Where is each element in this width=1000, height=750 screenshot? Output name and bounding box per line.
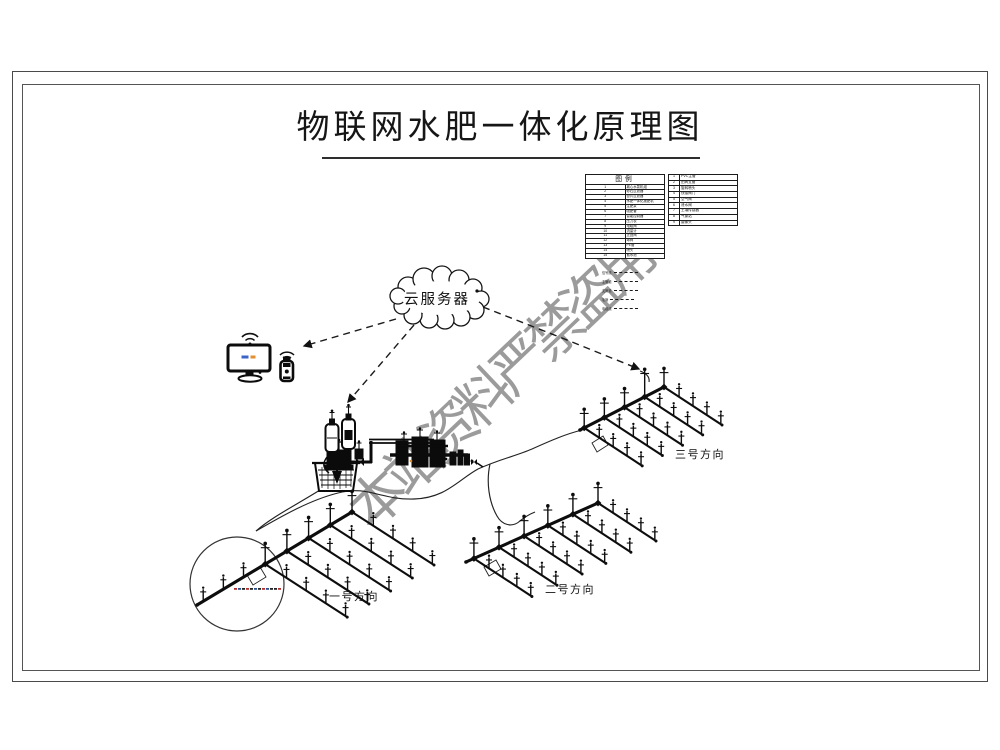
monitor-icon [228,334,270,382]
link-cloud-to-field3 [483,307,639,369]
field-grid-1 [195,490,435,619]
detail-circle [190,537,284,631]
irrigation-fields [195,367,724,619]
legend-table-main: 图例 1离心水泵机组2砂石过滤器3叠片过滤器4水肥一体化施肥机5注肥泵6吸肥管7… [585,174,665,259]
legend-header: 图例 [586,175,665,185]
field-1-label: 一号方向 [329,588,379,604]
legend-table-secondary: 1PVC主管2田间支管3旋转喷头4快接阀门5空气阀6泄水阀7土壤传感器8气象站9… [668,174,738,226]
field-2-label: 二号方向 [545,581,595,597]
cloud-server-label: 云服务器 [404,288,470,309]
cloud-dot [475,289,478,292]
screen-orange-bar [251,356,256,359]
wifi-icon [280,352,294,355]
linetype-row: 主管道 [602,277,638,286]
wireless-links [304,307,639,402]
linetype-label: 电缆线 [602,306,612,311]
linetype-dash-sample [610,299,634,300]
linetype-legend: 信号线主管道支管道毛管电缆线 [602,268,638,313]
indicator-dot [410,460,413,463]
wifi-icon [242,334,258,337]
link-cloud-to-station [348,325,414,402]
linetype-label: 信号线 [602,270,612,275]
detail-annotation-text [234,588,281,590]
legend-row-label: 蓄水池 [625,253,665,258]
title-underline [322,157,700,159]
linetype-dash-sample [614,308,638,309]
linetype-row: 支管道 [602,286,638,295]
linetype-row: 电缆线 [602,304,638,313]
drawing-sheet: 物联网水肥一体化原理图 本站资料严禁盗用 图例 1离心水泵机组2砂石过滤器3叠片… [0,0,1000,750]
linetype-label: 支管道 [602,288,612,293]
legend-row-number: 9 [669,220,680,226]
pipe-to-field2 [488,464,535,525]
link-cloud-to-terminal [304,319,396,346]
legend-row: 9摄像头 [669,220,738,226]
screen-blue-bar [242,356,249,359]
legend-row-number: 15 [586,253,626,258]
linetype-label: 毛管 [602,297,608,302]
legend-row-label: 摄像头 [680,220,738,226]
fertigation-station [312,404,483,491]
usb-dongle-icon [280,352,294,381]
page-title: 物联网水肥一体化原理图 [0,100,1000,148]
legend-row: 15蓄水池 [586,253,665,258]
linetype-row: 信号线 [602,268,638,277]
linetype-dash-sample [614,281,638,282]
filter-unit [390,427,483,467]
linetype-label: 主管道 [602,279,612,284]
field-3-label: 三号方向 [675,446,725,462]
linetype-dash-sample [614,272,638,273]
linetype-dash-sample [614,290,638,291]
linetype-row: 毛管 [602,295,638,304]
